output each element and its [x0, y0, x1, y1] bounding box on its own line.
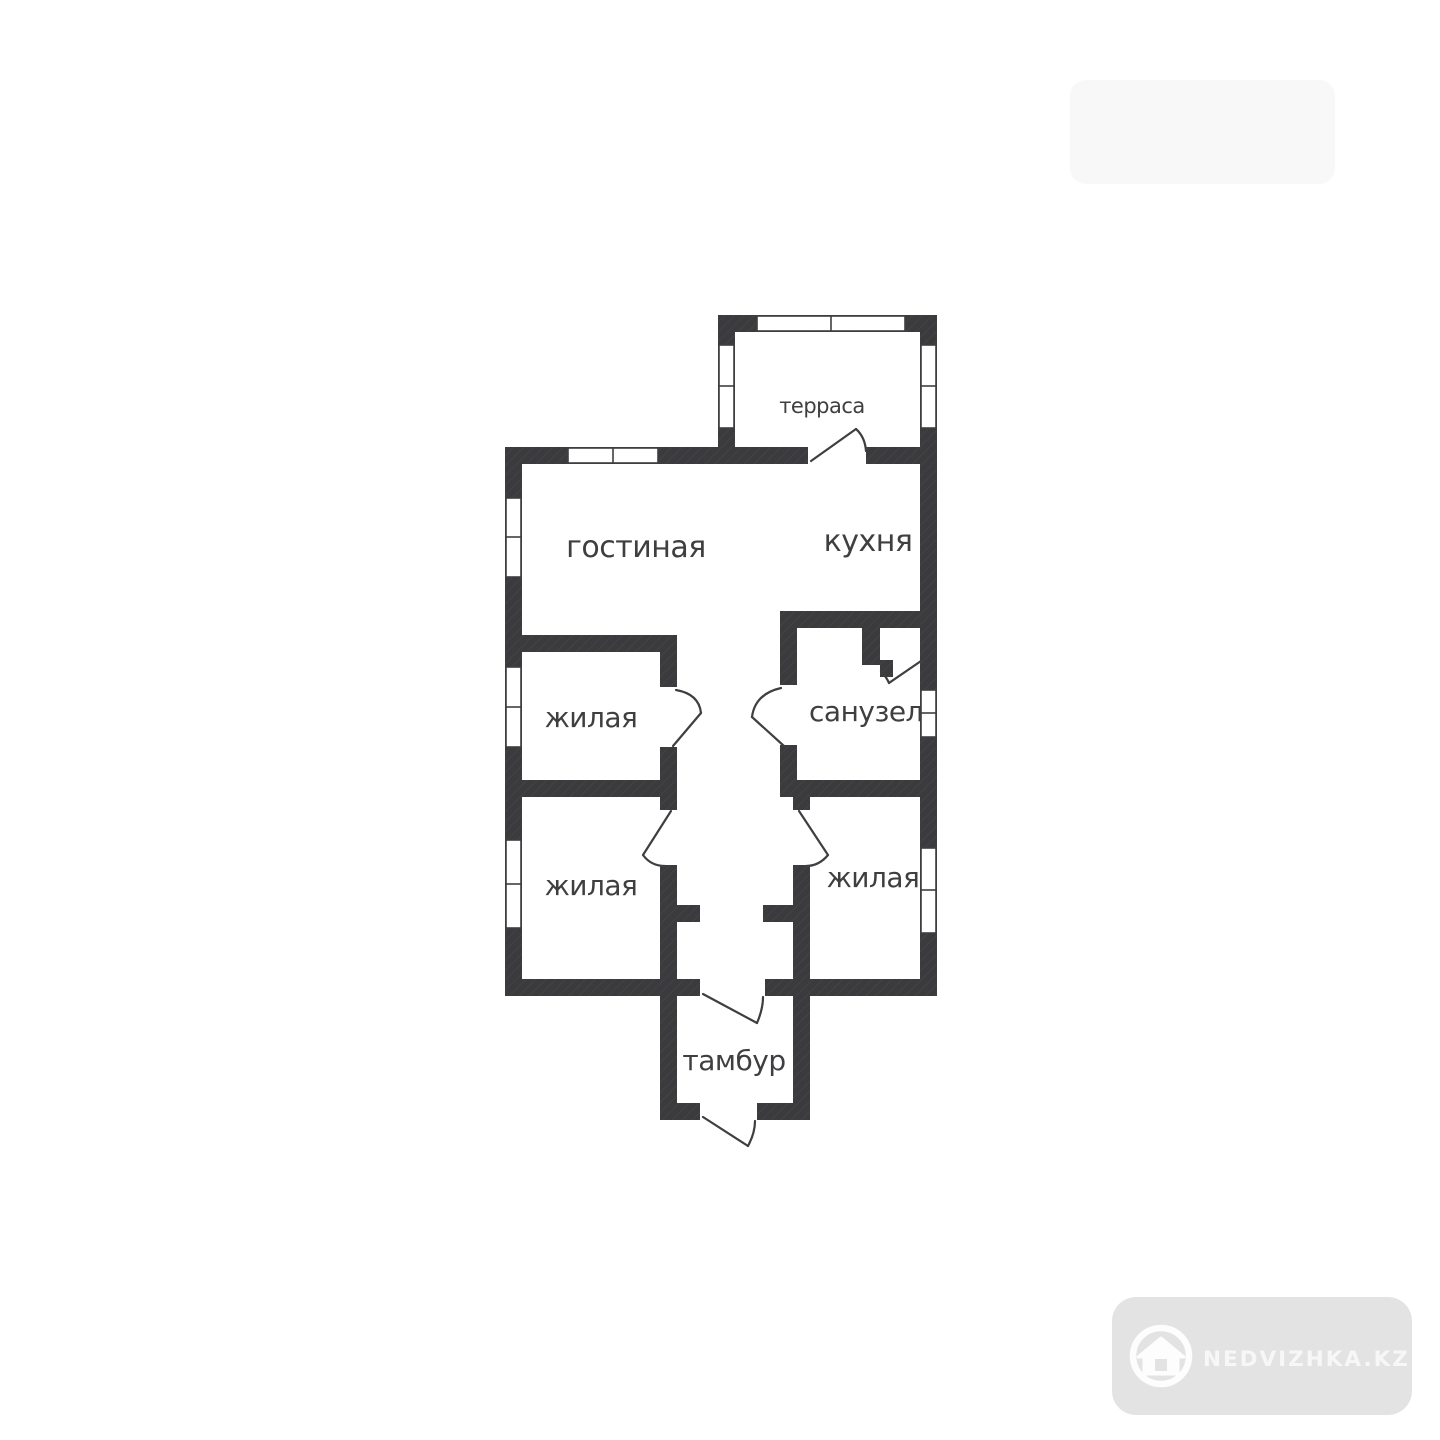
- door-opening: [779, 685, 798, 745]
- room-label-vestibule: тамбур: [682, 1044, 785, 1077]
- door-opening: [659, 687, 678, 747]
- room-label-bathroom: санузел: [809, 695, 923, 728]
- wall: [660, 1103, 700, 1120]
- room-labels: терраса гостиная кухня жилая санузел жил…: [545, 394, 923, 1077]
- wall: [780, 611, 937, 628]
- floor-plan-page: терраса гостиная кухня жилая санузел жил…: [0, 0, 1440, 1440]
- wall: [757, 1103, 810, 1120]
- wall: [763, 905, 793, 922]
- window: [921, 690, 936, 737]
- room-label-bedroom2: жилая: [545, 869, 638, 902]
- door-opening: [659, 810, 678, 865]
- wall: [660, 996, 677, 1120]
- wall: [780, 780, 937, 797]
- watermark-badge: NEDVIZHKA.KZ: [1112, 1297, 1412, 1415]
- door-opening: [700, 1102, 757, 1121]
- window: [506, 498, 521, 577]
- door-swing: [703, 994, 763, 1023]
- window: [568, 448, 658, 463]
- wall: [862, 628, 880, 665]
- window: [719, 345, 734, 428]
- wall: [505, 780, 677, 797]
- window: [921, 345, 936, 428]
- wall: [793, 996, 810, 1120]
- window: [757, 316, 905, 331]
- room-label-bedroom1: жилая: [545, 701, 638, 734]
- wall: [505, 635, 677, 652]
- room-label-terrace: терраса: [779, 394, 865, 418]
- window: [921, 848, 936, 933]
- floor-plan-drawing: терраса гостиная кухня жилая санузел жил…: [0, 0, 1440, 1440]
- faint-watermark: [1070, 80, 1335, 184]
- wall: [880, 660, 893, 677]
- door-opening: [808, 446, 866, 465]
- wall: [677, 905, 700, 922]
- room-label-bedroom3: жилая: [827, 861, 920, 894]
- room-label-living: гостиная: [566, 530, 706, 565]
- watermark-text: NEDVIZHKA.KZ: [1203, 1347, 1410, 1372]
- door-swing: [703, 1117, 755, 1146]
- door-opening: [700, 978, 765, 997]
- window: [506, 667, 521, 747]
- room-label-kitchen: кухня: [824, 524, 913, 559]
- window: [506, 840, 521, 928]
- door-opening: [792, 810, 811, 865]
